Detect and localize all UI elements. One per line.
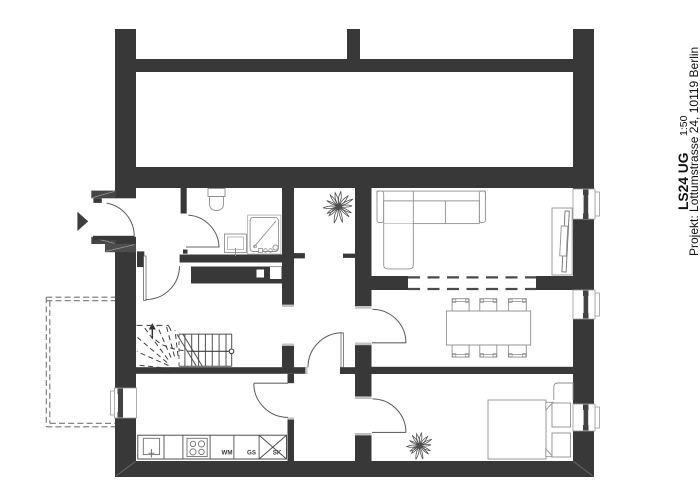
svg-text:WM: WM (222, 450, 233, 457)
svg-text:Projekt: Lottumstrasse 24, 101: Projekt: Lottumstrasse 24, 10119 Berlin (687, 47, 700, 256)
svg-text:GS: GS (247, 450, 256, 457)
